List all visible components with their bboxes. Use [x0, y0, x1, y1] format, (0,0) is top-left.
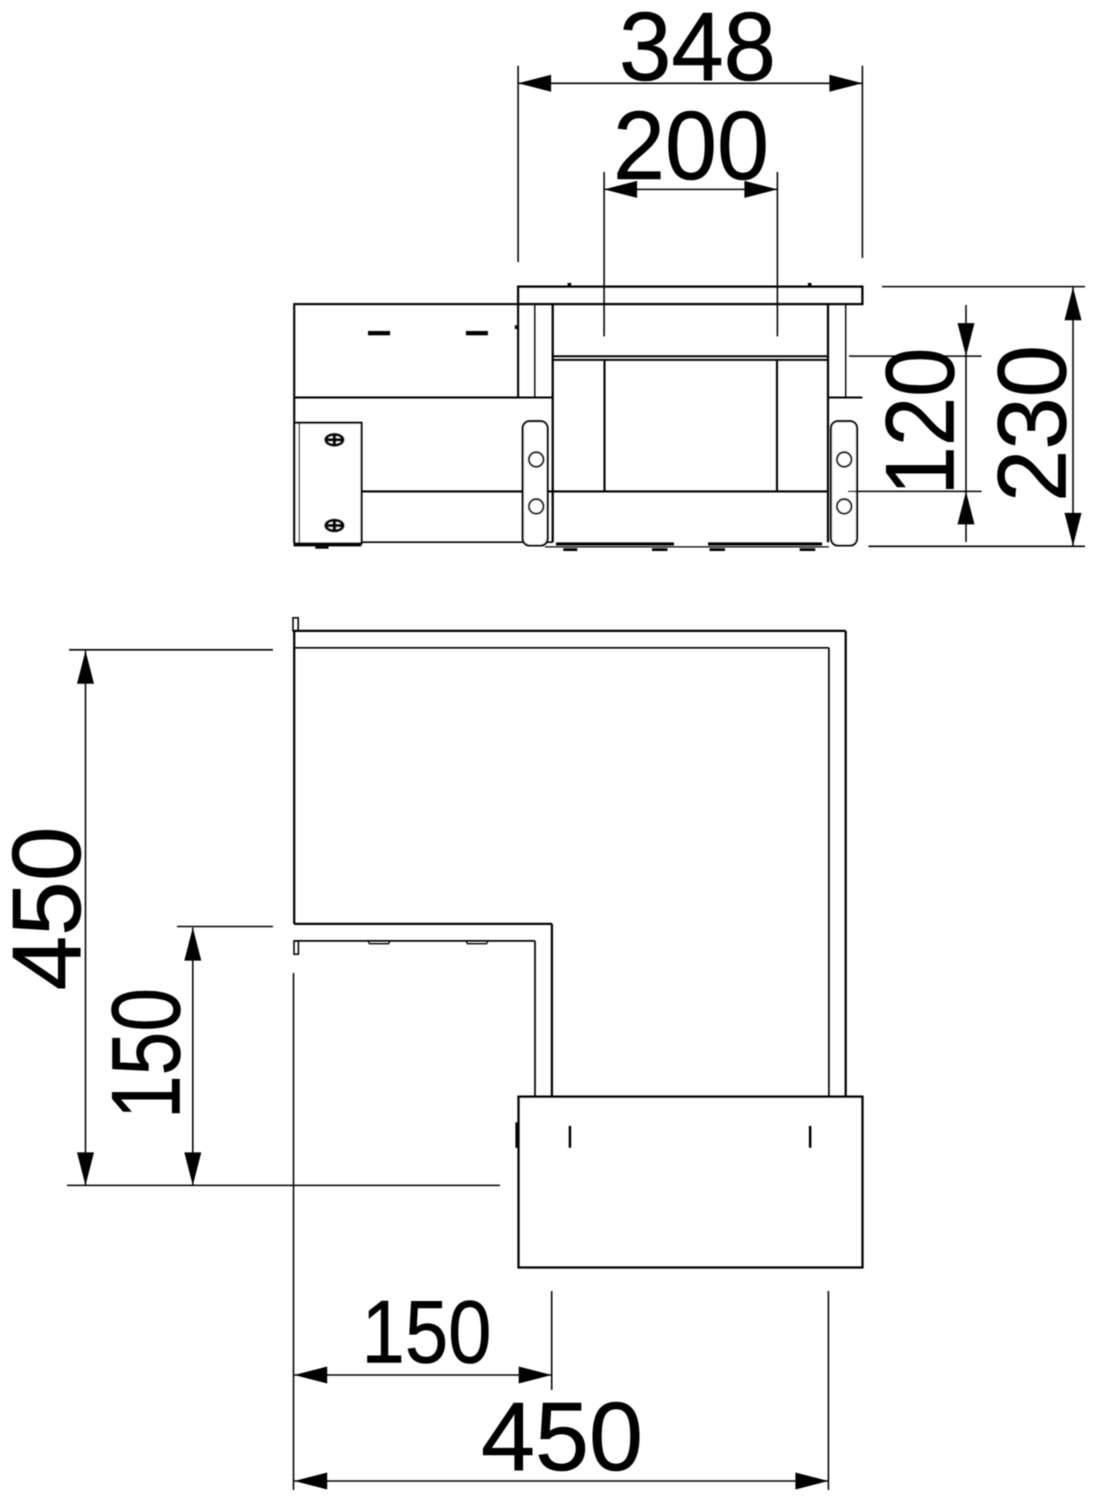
svg-text:120: 120	[866, 348, 975, 496]
svg-text:450: 450	[0, 827, 101, 991]
svg-text:200: 200	[613, 91, 769, 200]
svg-text:150: 150	[92, 988, 201, 1119]
svg-text:150: 150	[362, 1282, 492, 1382]
svg-text:230: 230	[978, 345, 1087, 502]
svg-text:348: 348	[619, 0, 776, 101]
svg-text:450: 450	[481, 1382, 643, 1491]
